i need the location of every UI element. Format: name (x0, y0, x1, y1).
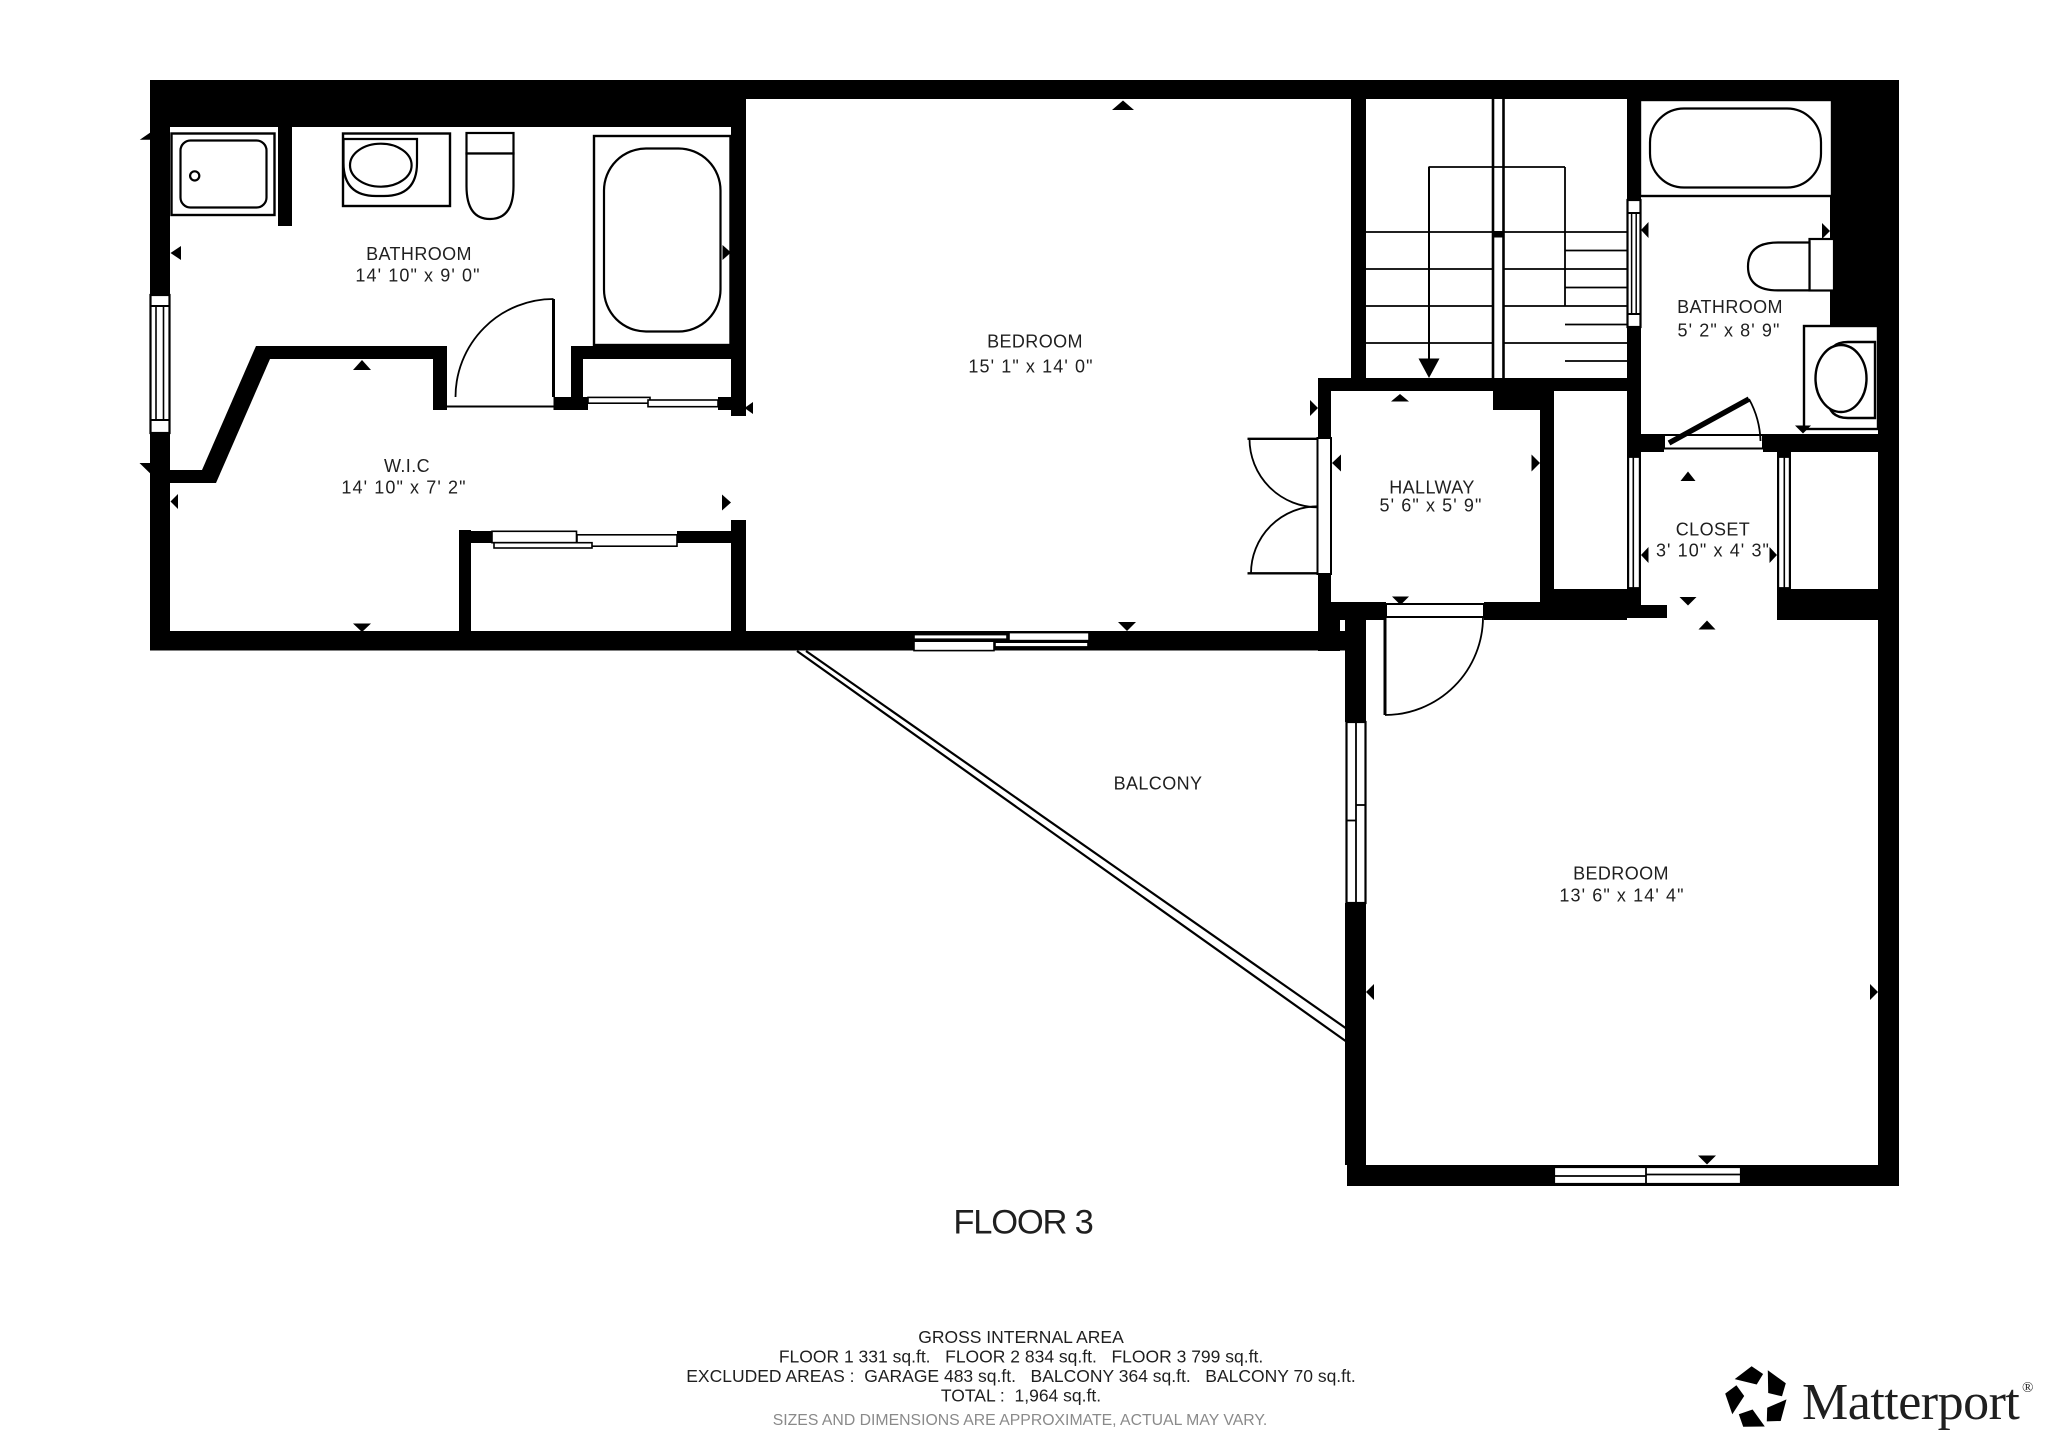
svg-text:FLOOR 1 331 sq.ft. FLOOR 2 8: FLOOR 1 331 sq.ft. FLOOR 2 834 sq.ft. FL… (779, 1347, 1263, 1367)
svg-text:CLOSET: CLOSET (1676, 520, 1750, 540)
svg-text:GROSS INTERNAL AREA: GROSS INTERNAL AREA (918, 1327, 1124, 1347)
svg-text:W.I.C: W.I.C (384, 456, 430, 476)
svg-text:Matterport: Matterport (1802, 1374, 2020, 1431)
svg-text:5' 6" x 5' 9": 5' 6" x 5' 9" (1380, 496, 1483, 516)
svg-text:BEDROOM: BEDROOM (1573, 864, 1669, 884)
svg-text:BATHROOM: BATHROOM (366, 244, 472, 264)
svg-text:13' 6" x 14' 4": 13' 6" x 14' 4" (1559, 886, 1684, 906)
svg-text:BEDROOM: BEDROOM (987, 332, 1083, 352)
svg-text:EXCLUDED AREAS : GARAGE 483 s: EXCLUDED AREAS : GARAGE 483 sq.ft. BALCO… (686, 1366, 1356, 1386)
svg-text:BALCONY: BALCONY (1114, 774, 1203, 794)
svg-text:SIZES AND DIMENSIONS ARE APPRO: SIZES AND DIMENSIONS ARE APPROXIMATE, AC… (773, 1412, 1268, 1429)
svg-text:14' 10" x 9' 0": 14' 10" x 9' 0" (355, 266, 480, 286)
svg-text:BATHROOM: BATHROOM (1677, 297, 1783, 317)
svg-text:15' 1" x 14' 0": 15' 1" x 14' 0" (968, 357, 1093, 377)
svg-text:HALLWAY: HALLWAY (1389, 478, 1475, 498)
svg-text:5' 2" x 8' 9": 5' 2" x 8' 9" (1678, 321, 1781, 341)
svg-text:3' 10" x 4' 3": 3' 10" x 4' 3" (1656, 541, 1770, 561)
svg-text:14' 10" x 7' 2": 14' 10" x 7' 2" (341, 478, 466, 498)
svg-text:TOTAL : 1,964 sq.ft.: TOTAL : 1,964 sq.ft. (941, 1386, 1101, 1406)
svg-text:®: ® (2022, 1380, 2033, 1396)
svg-text:FLOOR 3: FLOOR 3 (953, 1204, 1092, 1242)
